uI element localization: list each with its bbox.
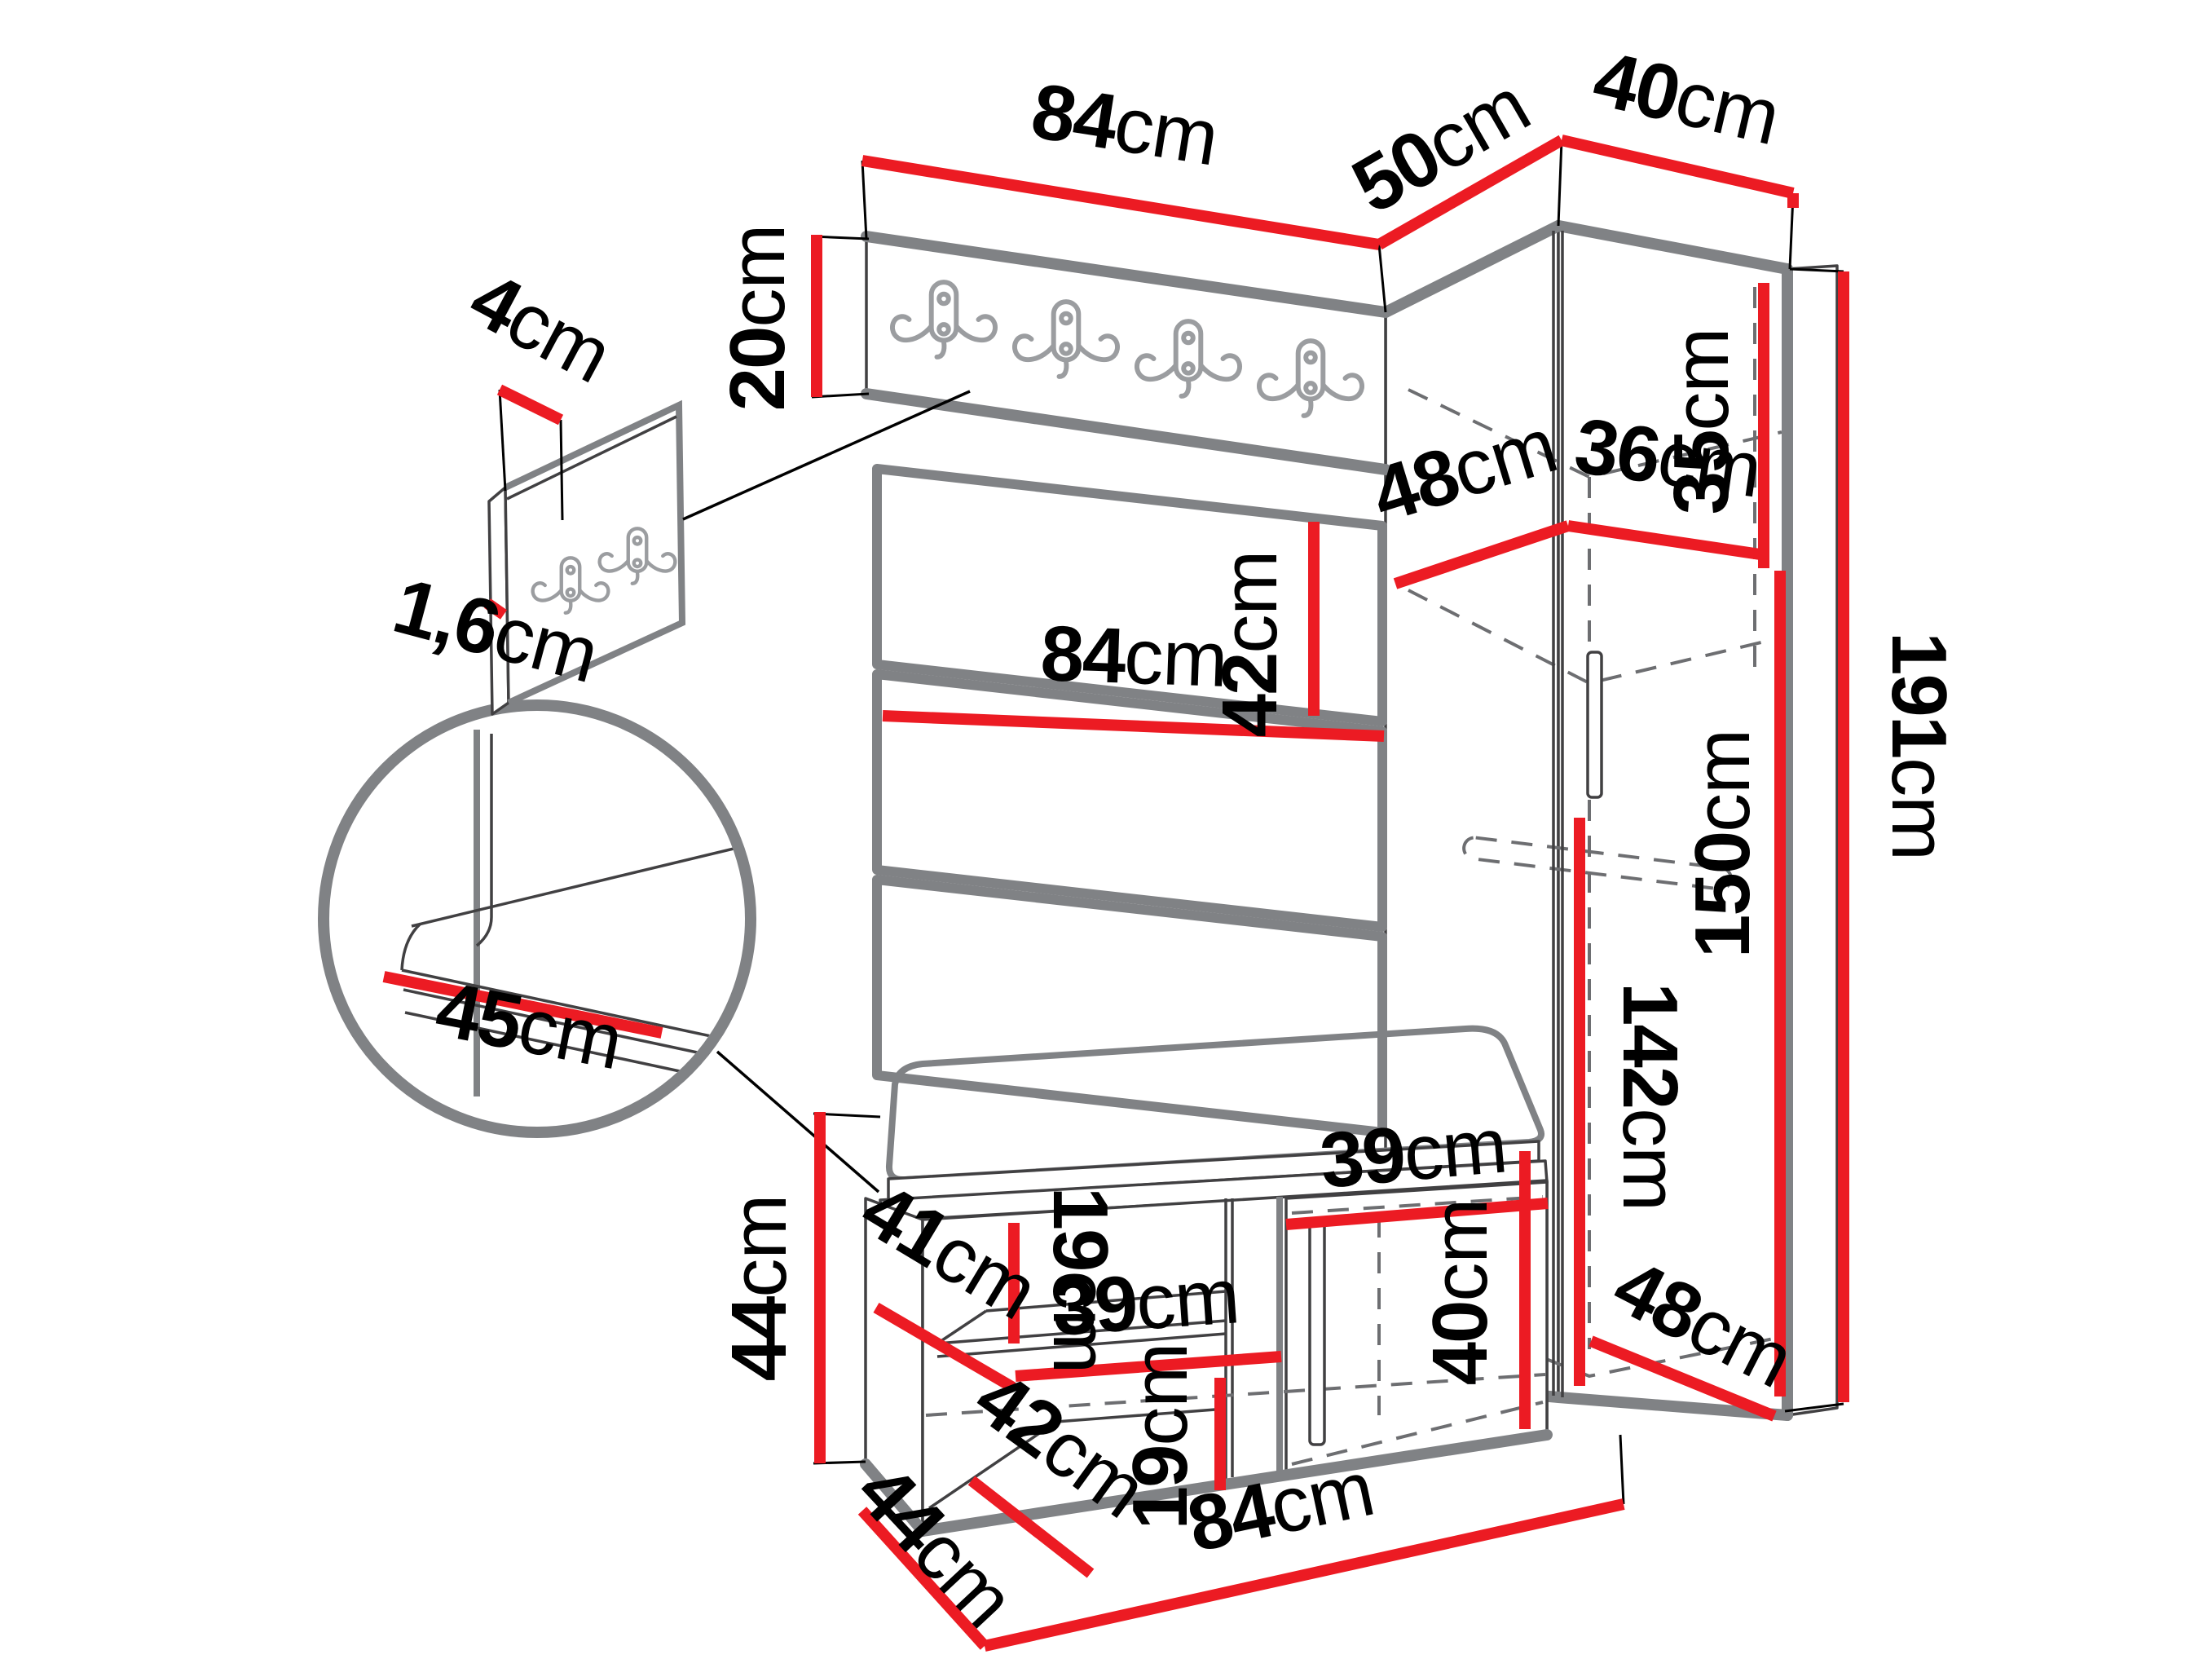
dim-label-top-compartment-height: 35cm [1658, 329, 1745, 515]
dim-label-hanging-space-height: 150cm [1679, 730, 1766, 958]
dim-label-strip-width: 4cm [456, 254, 625, 399]
dim-label-wardrobe-right-width: 40cm [1586, 34, 1787, 161]
wardrobe-side-gable [1787, 266, 1837, 1415]
leader-seat-detail [717, 1052, 879, 1192]
dim-label-bench-height: 44cm [716, 1195, 803, 1382]
bench-door-handle [1310, 1221, 1324, 1445]
dim-label-bench-door-height: 40cm [1417, 1199, 1504, 1386]
furniture-dimension-diagram: 84cm 50cm 40cm 20cm 4cm 1,6cm 42cm 48cm … [0, 0, 2212, 1659]
dim-label-door-height: 142cm [1606, 982, 1694, 1211]
dim-line-strip-width [500, 390, 561, 420]
diagram-canvas: 84cm 50cm 40cm 20cm 4cm 1,6cm 42cm 48cm … [0, 0, 2212, 1659]
dim-label-hook-board-height: 20cm [714, 225, 801, 412]
dim-label-wardrobe-height: 191cm [1875, 632, 1963, 860]
dim-label-hook-board-width: 84cm [1026, 67, 1224, 182]
dim-label-panel-width: 84cm [1039, 610, 1228, 704]
dim-label-bench-door-width: 39cm [1317, 1101, 1510, 1205]
dim-label-bench-shelf-width: 39cm [1050, 1252, 1242, 1352]
wardrobe-door-handle [1588, 652, 1602, 797]
dim-line-hook-board-width [862, 161, 1379, 245]
